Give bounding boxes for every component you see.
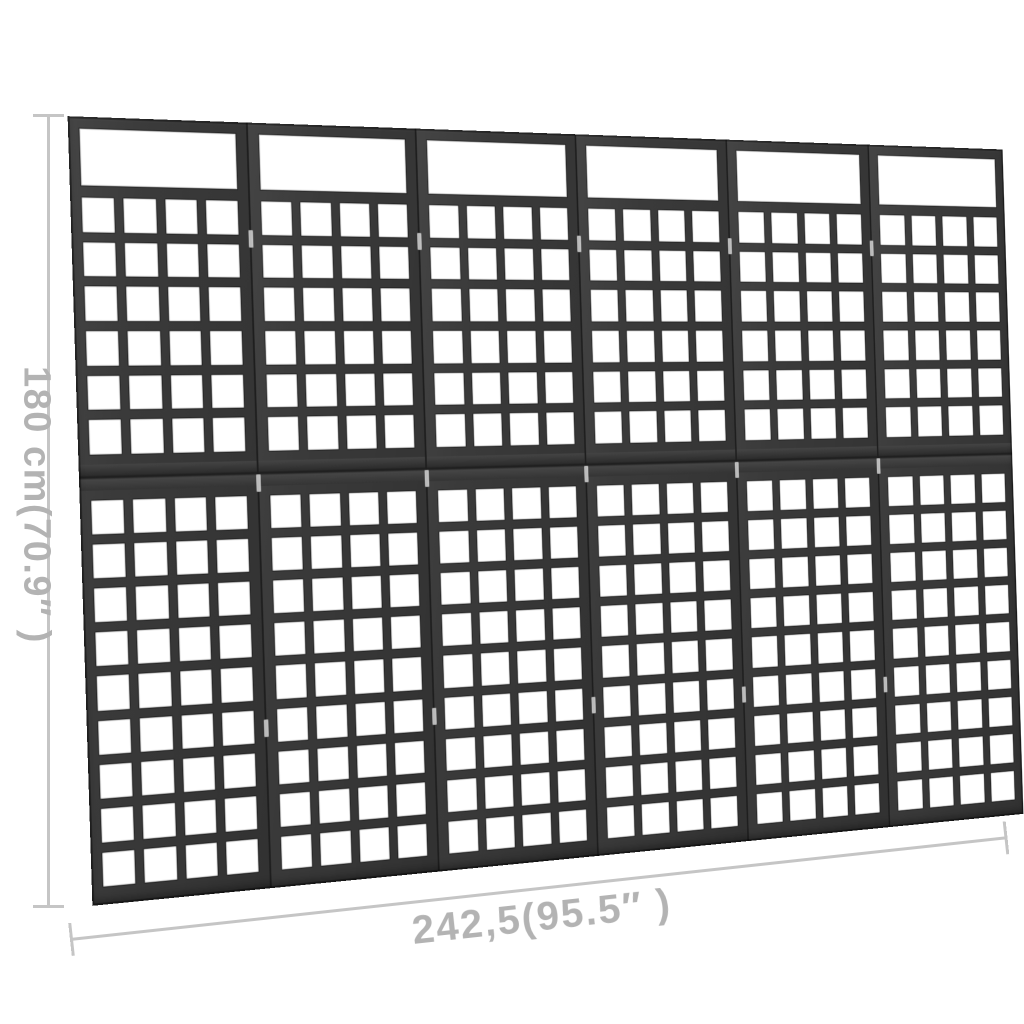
panel-top-window — [427, 140, 567, 197]
lattice-opening — [738, 212, 765, 243]
lattice-opening — [312, 578, 343, 612]
lattice-opening — [639, 722, 667, 755]
lattice-opening — [892, 590, 917, 621]
lattice-opening — [355, 701, 386, 736]
lattice-opening — [633, 524, 661, 556]
lattice-opening — [739, 251, 766, 282]
lattice-opening — [98, 718, 132, 754]
lattice-opening — [955, 624, 980, 654]
panel-hinge — [425, 470, 430, 487]
lattice-opening — [883, 330, 908, 360]
lattice-opening — [179, 627, 212, 662]
trellis-panel-2 — [247, 123, 440, 889]
lattice-opening — [838, 253, 864, 283]
lattice-opening — [662, 331, 690, 362]
lattice-opening — [636, 603, 664, 635]
lattice-opening — [180, 670, 213, 705]
lattice-opening — [520, 731, 549, 765]
lattice-opening — [742, 330, 769, 361]
panel-middle-rail — [258, 457, 426, 486]
lattice-opening — [550, 527, 579, 559]
lattice-opening — [668, 522, 695, 554]
lattice-opening — [703, 560, 730, 592]
lattice-opening — [184, 799, 217, 835]
lattice-opening — [917, 407, 942, 437]
lattice-opening — [950, 474, 975, 504]
panel-top-window — [736, 151, 861, 204]
lattice-opening — [894, 665, 919, 696]
lattice-opening — [853, 745, 879, 777]
lattice-grid-lower — [597, 482, 738, 839]
lattice-opening — [95, 631, 129, 667]
lattice-opening — [217, 539, 249, 573]
lattice-opening — [438, 489, 468, 522]
lattice-opening — [136, 585, 169, 620]
lattice-opening — [339, 203, 370, 237]
lattice-opening — [378, 204, 408, 237]
lattice-opening — [818, 671, 844, 703]
lattice-opening — [895, 703, 920, 734]
lattice-grid-lower — [438, 486, 587, 853]
lattice-opening — [925, 663, 950, 694]
lattice-opening — [924, 626, 949, 657]
lattice-opening — [307, 416, 338, 450]
lattice-opening — [810, 408, 836, 439]
lattice-opening — [911, 216, 936, 246]
trellis-room-divider — [68, 116, 1024, 906]
lattice-opening — [674, 720, 701, 753]
lattice-opening — [814, 517, 840, 548]
panel-hinge — [584, 466, 589, 483]
lattice-opening — [986, 622, 1010, 652]
lattice-opening — [780, 479, 806, 510]
lattice-opening — [750, 597, 777, 629]
lattice-opening — [546, 412, 575, 444]
lattice-opening — [642, 802, 670, 835]
lattice-opening — [432, 289, 462, 322]
lattice-opening — [447, 778, 477, 812]
panel-hinge — [591, 697, 596, 714]
panel-hinge — [417, 233, 422, 250]
lattice-opening — [541, 248, 570, 280]
lattice-opening — [478, 570, 507, 603]
lattice-opening — [475, 488, 504, 521]
lattice-opening — [486, 816, 515, 850]
lattice-opening — [746, 480, 773, 511]
lattice-opening — [218, 582, 250, 617]
lattice-opening — [817, 632, 843, 663]
lattice-opening — [388, 533, 418, 566]
lattice-opening — [846, 516, 872, 547]
lattice-opening — [696, 331, 723, 362]
lattice-opening — [673, 680, 700, 712]
lattice-opening — [348, 492, 379, 525]
panel-hinge — [735, 462, 739, 478]
lattice-opening — [929, 776, 954, 807]
lattice-opening — [854, 783, 880, 815]
lattice-opening — [671, 641, 698, 673]
lattice-opening — [606, 765, 634, 798]
lattice-opening — [628, 371, 656, 403]
lattice-opening — [320, 830, 351, 865]
lattice-opening — [975, 293, 999, 322]
lattice-opening — [281, 834, 313, 870]
lattice-opening — [279, 791, 311, 827]
panel-hinge — [248, 230, 253, 248]
lattice-opening — [261, 201, 293, 235]
lattice-opening — [634, 563, 662, 595]
lattice-opening — [771, 212, 797, 243]
lattice-opening — [982, 511, 1006, 541]
lattice-opening — [754, 714, 781, 746]
lattice-opening — [504, 248, 533, 280]
lattice-opening — [522, 812, 551, 846]
lattice-opening — [781, 518, 807, 549]
lattice-opening — [395, 740, 425, 775]
lattice-opening — [443, 654, 473, 688]
lattice-opening — [989, 734, 1013, 765]
lattice-opening — [751, 636, 778, 668]
lattice-opening — [175, 497, 208, 531]
lattice-opening — [222, 710, 254, 745]
trellis-panel-3 — [417, 129, 599, 872]
lattice-opening — [806, 291, 832, 321]
lattice-opening — [177, 584, 210, 619]
lattice-opening — [707, 678, 734, 710]
lattice-opening — [888, 476, 913, 506]
lattice-opening — [627, 331, 655, 362]
panel-hinge — [728, 238, 732, 254]
lattice-opening — [602, 645, 630, 678]
panel-middle-rail — [79, 461, 258, 491]
panel-hinge — [256, 475, 261, 493]
lattice-grid-upper — [261, 201, 415, 451]
panel-hinge — [264, 720, 269, 738]
lattice-grid-upper — [880, 215, 1004, 437]
panel-middle-rail — [427, 453, 585, 481]
lattice-opening — [125, 243, 158, 278]
lattice-opening — [311, 535, 342, 569]
lattice-opening — [786, 673, 812, 705]
lattice-opening — [981, 474, 1005, 504]
lattice-opening — [977, 330, 1001, 359]
lattice-opening — [912, 254, 937, 284]
lattice-grid-upper — [429, 205, 574, 447]
lattice-opening — [958, 699, 983, 730]
lattice-opening — [942, 216, 967, 246]
lattice-opening — [226, 839, 258, 875]
lattice-opening — [698, 410, 725, 441]
lattice-opening — [890, 552, 915, 582]
lattice-opening — [302, 245, 333, 279]
lattice-opening — [659, 250, 687, 281]
lattice-opening — [393, 699, 423, 733]
lattice-opening — [815, 555, 841, 586]
lattice-opening — [591, 290, 619, 322]
lattice-opening — [927, 701, 952, 732]
lattice-opening — [518, 691, 547, 724]
lattice-opening — [429, 205, 459, 238]
lattice-opening — [816, 594, 842, 625]
lattice-opening — [380, 289, 410, 322]
lattice-opening — [850, 630, 876, 661]
trellis-panel-1 — [68, 116, 272, 906]
lattice-opening — [384, 415, 414, 448]
lattice-opening — [948, 406, 973, 436]
lattice-opening — [542, 290, 571, 322]
lattice-opening — [358, 785, 389, 820]
lattice-opening — [543, 331, 572, 363]
lattice-opening — [947, 368, 972, 398]
lattice-opening — [597, 485, 625, 517]
lattice-opening — [626, 290, 654, 321]
lattice-opening — [137, 629, 170, 664]
lattice-opening — [632, 484, 660, 516]
lattice-opening — [898, 779, 923, 811]
lattice-opening — [711, 796, 738, 829]
lattice-opening — [785, 634, 811, 666]
lattice-opening — [775, 330, 801, 361]
lattice-opening — [804, 213, 830, 244]
lattice-opening — [445, 695, 475, 729]
lattice-opening — [94, 587, 128, 622]
lattice-opening — [848, 592, 874, 623]
lattice-opening — [508, 372, 537, 404]
lattice-opening — [210, 331, 242, 365]
lattice-opening — [991, 771, 1015, 802]
lattice-opening — [306, 374, 337, 408]
height-dimension-label: 180 cm(70.9″ ) — [15, 366, 58, 644]
lattice-opening — [928, 739, 953, 770]
lattice-opening — [624, 250, 652, 282]
lattice-opening — [669, 562, 696, 594]
lattice-grid-upper — [738, 212, 868, 441]
lattice-opening — [702, 521, 729, 552]
lattice-opening — [482, 693, 511, 727]
lattice-opening — [695, 291, 722, 322]
lattice-opening — [782, 557, 808, 588]
lattice-opening — [558, 809, 587, 843]
lattice-opening — [359, 827, 390, 862]
panel-top-window — [259, 135, 407, 194]
lattice-opening — [449, 819, 479, 854]
lattice-opening — [89, 420, 123, 455]
lattice-opening — [985, 585, 1009, 615]
lattice-opening — [822, 786, 848, 818]
lattice-opening — [919, 475, 944, 505]
lattice-opening — [956, 661, 981, 692]
lattice-opening — [839, 292, 865, 322]
lattice-opening — [431, 247, 461, 280]
product-dimension-image: 180 cm(70.9″ ) 242,5(95.5″ ) — [0, 0, 1024, 1024]
lattice-opening — [134, 542, 167, 577]
lattice-opening — [319, 788, 350, 823]
lattice-opening — [397, 824, 427, 859]
lattice-opening — [945, 292, 970, 322]
lattice-opening — [836, 214, 862, 245]
trellis-panel-5 — [727, 140, 891, 841]
lattice-opening — [987, 659, 1011, 689]
lattice-opening — [914, 292, 939, 322]
lattice-opening — [845, 478, 871, 508]
lattice-opening — [181, 713, 214, 749]
lattice-opening — [271, 537, 303, 571]
lattice-opening — [979, 406, 1003, 436]
lattice-opening — [592, 331, 620, 363]
lattice-opening — [776, 370, 802, 401]
lattice-opening — [882, 292, 907, 322]
lattice-opening — [265, 331, 297, 365]
lattice-opening — [300, 202, 331, 236]
lattice-opening — [484, 775, 513, 809]
lattice-grid-lower — [270, 491, 428, 870]
lattice-opening — [753, 675, 780, 707]
lattice-opening — [165, 199, 198, 234]
lattice-opening — [124, 198, 157, 233]
lattice-opening — [140, 716, 173, 752]
lattice-opening — [630, 411, 658, 443]
lattice-opening — [185, 842, 218, 878]
lattice-opening — [274, 622, 306, 657]
lattice-opening — [889, 514, 914, 544]
lattice-opening — [593, 371, 621, 403]
lattice-opening — [808, 330, 834, 360]
lattice-opening — [433, 331, 463, 364]
lattice-opening — [709, 756, 736, 789]
lattice-opening — [144, 846, 177, 883]
lattice-opening — [922, 551, 947, 581]
lattice-opening — [483, 734, 512, 768]
lattice-opening — [383, 373, 413, 406]
lattice-opening — [805, 252, 831, 283]
lattice-opening — [788, 750, 814, 782]
panel-middle-rail — [736, 446, 877, 472]
lattice-opening — [885, 369, 910, 399]
lattice-opening — [551, 567, 580, 600]
lattice-opening — [880, 215, 905, 245]
lattice-opening — [342, 288, 373, 321]
lattice-opening — [660, 290, 688, 321]
panel-hinge — [870, 240, 874, 256]
lattice-opening — [676, 799, 703, 832]
lattice-opening — [354, 660, 385, 694]
lattice-opening — [974, 255, 998, 285]
lattice-opening — [309, 493, 340, 527]
lattice-opening — [389, 574, 419, 608]
lattice-opening — [507, 331, 536, 363]
lattice-opening — [603, 685, 631, 718]
lattice-opening — [468, 247, 498, 280]
lattice-opening — [434, 372, 464, 405]
lattice-opening — [772, 252, 798, 283]
lattice-opening — [666, 483, 693, 514]
panel-hinge — [742, 687, 746, 703]
lattice-opening — [278, 749, 310, 784]
panel-middle-rail — [586, 450, 736, 477]
lattice-opening — [315, 662, 346, 697]
lattice-opening — [978, 368, 1002, 398]
lattice-opening — [341, 246, 372, 279]
lattice-opening — [126, 287, 159, 321]
lattice-opening — [392, 657, 422, 691]
lattice-opening — [777, 409, 803, 440]
lattice-opening — [93, 543, 127, 578]
lattice-opening — [852, 707, 878, 739]
lattice-opening — [351, 576, 382, 610]
panel-hinge — [884, 677, 888, 693]
lattice-opening — [503, 207, 532, 240]
lattice-opening — [601, 605, 629, 638]
lattice-opening — [517, 650, 546, 683]
width-dimension-label: 242,5(95.5″ ) — [410, 881, 674, 954]
lattice-opening — [87, 375, 121, 410]
lattice-opening — [604, 725, 632, 758]
lattice-opening — [664, 411, 692, 443]
lattice-opening — [396, 782, 426, 817]
lattice-opening — [313, 620, 344, 654]
lattice-opening — [86, 331, 120, 366]
lattice-opening — [91, 500, 125, 535]
panel-top-window — [79, 129, 236, 190]
lattice-opening — [129, 375, 162, 410]
lattice-opening — [171, 375, 204, 409]
lattice-opening — [555, 688, 584, 721]
lattice-opening — [851, 668, 877, 699]
lattice-opening — [275, 664, 307, 699]
lattice-opening — [749, 558, 776, 589]
lattice-opening — [748, 519, 775, 550]
lattice-opening — [472, 372, 502, 405]
lattice-opening — [812, 478, 838, 509]
lattice-opening — [391, 616, 421, 650]
panel-top-window — [586, 146, 718, 201]
lattice-opening — [954, 587, 979, 617]
lattice-opening — [952, 512, 977, 542]
lattice-opening — [589, 249, 617, 281]
lattice-opening — [843, 408, 869, 439]
lattice-grid-lower — [888, 474, 1015, 811]
lattice-opening — [168, 287, 201, 321]
trellis-panel-4 — [576, 134, 749, 856]
lattice-opening — [221, 667, 253, 702]
trellis-panels-row — [68, 116, 1024, 906]
lattice-opening — [273, 579, 305, 613]
lattice-opening — [881, 253, 906, 283]
lattice-opening — [789, 789, 815, 821]
lattice-opening — [470, 331, 500, 363]
lattice-opening — [267, 417, 299, 451]
lattice-opening — [921, 513, 946, 543]
lattice-opening — [99, 762, 133, 798]
lattice-opening — [131, 419, 164, 454]
lattice-opening — [893, 628, 918, 659]
lattice-opening — [638, 683, 666, 716]
lattice-opening — [102, 850, 136, 887]
panel-hinge — [577, 235, 582, 252]
lattice-opening — [821, 747, 847, 779]
lattice-opening — [847, 554, 873, 585]
lattice-opening — [708, 717, 735, 749]
lattice-opening — [923, 588, 948, 618]
lattice-opening — [346, 416, 377, 450]
lattice-grid-lower — [746, 478, 880, 825]
lattice-opening — [983, 548, 1007, 578]
lattice-opening — [513, 528, 542, 561]
lattice-opening — [783, 595, 809, 626]
lattice-opening — [658, 210, 686, 242]
lattice-opening — [316, 704, 347, 739]
lattice-opening — [83, 242, 117, 277]
